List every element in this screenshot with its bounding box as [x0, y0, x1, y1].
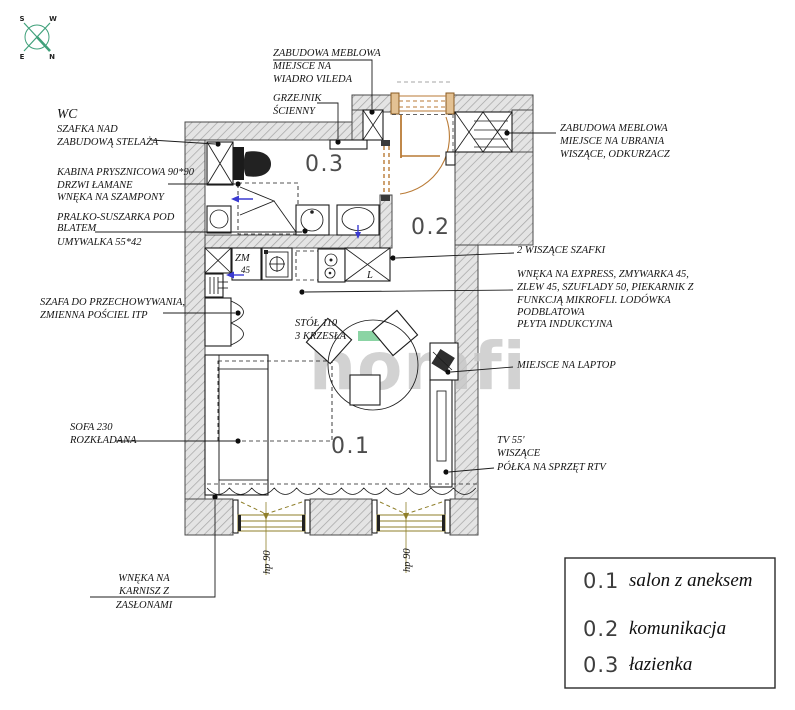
basin-symbol	[337, 205, 379, 239]
curtain-label-3: ZASŁONAMI	[116, 600, 173, 611]
kitchen-label-5: PŁYTA INDUKCYJNA	[516, 319, 613, 330]
compass-e: E	[20, 53, 25, 61]
entry-wardrobe-label-3: WISZĄCE, ODKURZACZ	[560, 149, 670, 160]
laptop-desk-symbol	[430, 343, 458, 380]
window-1: hp 90	[233, 499, 310, 575]
storage-wardrobe-symbol	[205, 298, 244, 346]
wc-title: WC	[57, 106, 78, 121]
entry-wardrobe-label-2: MIEJSCE NA UBRANIA	[559, 136, 665, 147]
basin-label: UMYWALKA 55*42	[57, 237, 142, 248]
kitchen-label-3: FUNKCJĄ MIKROFLI. LODÓWKA	[516, 294, 671, 306]
wc-cabinet-label-1: SZAFKA NAD	[57, 124, 118, 135]
floor-plan-page: S W E N homfi	[0, 0, 795, 710]
sofa-label-1: SOFA 230	[70, 422, 113, 433]
sofa-symbol	[205, 355, 268, 495]
bucket-label-2: MIEJSCE NA	[272, 61, 332, 72]
table-label-2: 3 KRZESŁA	[294, 331, 347, 342]
dishwasher-zm-label: ZM	[235, 253, 251, 264]
room-label-living: 0.1	[331, 434, 371, 459]
legend-num-3: 0.3	[583, 653, 619, 677]
bathroom-folding-door-symbol	[381, 140, 390, 201]
compass-n: N	[49, 53, 55, 61]
fridge-l-label: L	[366, 270, 373, 281]
kitchen-label-1: WNĘKA NA EXPRESS, ZMYWARKA 45,	[517, 269, 689, 280]
legend-label-1: salon z aneksem	[629, 570, 752, 591]
bucket-label-3: WIADRO VILEDA	[273, 74, 353, 85]
entry-wardrobe-label-1: ZABUDOWA MEBLOWA	[560, 123, 668, 134]
shower-label-1: KABINA PRYSZNICOWA 90*90	[56, 167, 195, 178]
room-label-hall: 0.2	[411, 215, 451, 240]
entry-wardrobe-symbol	[455, 112, 512, 152]
curtain-label-1: WNĘKA NA	[118, 573, 170, 584]
kitchen-label-2: ZLEW 45, SZUFLADY 50, PIEKARNIK Z	[517, 282, 694, 293]
entrance-door-symbol	[391, 93, 455, 194]
compass-w: W	[49, 15, 57, 23]
tv-label-3: PÓŁKA NA SPRZĘT RTV	[496, 461, 607, 473]
tv-label-1: TV 55'	[497, 435, 525, 446]
laptop-label: MIEJSCE NA LAPTOP	[516, 360, 616, 371]
legend-label-3: łazienka	[629, 654, 692, 675]
vileda-niche-symbol	[363, 110, 383, 140]
table-label-1: STÓŁ 110	[295, 317, 338, 329]
kitchen-sink-symbol	[262, 248, 292, 280]
kitchen-counter: ZM 45 L	[205, 248, 390, 282]
compass-rose: S W E N	[19, 15, 57, 61]
shower-label-3: WNĘKA NA SZAMPONY	[57, 192, 165, 203]
fridge-cabinet-symbol: L	[345, 248, 390, 281]
bucket-label-1: ZABUDOWA MEBLOWA	[273, 48, 381, 59]
kitchen-label-4: PODBLATOWA	[516, 307, 585, 318]
dishwasher-45-label: 45	[241, 265, 251, 275]
washer-label-2: BLATEM	[57, 223, 98, 234]
wc-cabinet-symbol	[207, 142, 233, 185]
washer-label-1: PRALKO-SUSZARKA POD	[56, 212, 175, 223]
hob-symbol	[318, 249, 345, 282]
drain-box-symbol	[207, 206, 231, 233]
tv-shelf-symbol	[430, 380, 452, 487]
compass-s: S	[19, 15, 24, 23]
window-2: hp 90	[372, 499, 450, 573]
floor-plan-drawing: S W E N homfi	[0, 0, 795, 710]
shower-symbol	[231, 183, 298, 234]
curtain-label-2: KARNISZ Z	[118, 586, 169, 597]
legend: 0.1 salon z aneksem 0.2 komunikacja 0.3 …	[565, 558, 775, 688]
radiator-label-1: GRZEJNIK	[273, 93, 322, 104]
legend-label-2: komunikacja	[629, 618, 726, 639]
window2-hp90-label: hp 90	[402, 548, 413, 572]
legend-num-1: 0.1	[583, 569, 619, 593]
left-heater-symbol	[205, 274, 228, 297]
window1-hp90-label: hp 90	[262, 550, 273, 574]
storage-label-1: SZAFA DO PRZECHOWYWANIA,	[40, 297, 185, 308]
hanging-cabinets-label: 2 WISZĄCE SZAFKI	[517, 245, 606, 256]
storage-label-2: ZMIENNA POŚCIEL ITP	[40, 309, 148, 321]
tv-label-2: WISZĄCE	[497, 448, 541, 459]
corner-cabinet-symbol	[205, 248, 231, 273]
legend-num-2: 0.2	[583, 617, 619, 641]
sofa-label-2: ROZKŁADANA	[69, 435, 137, 446]
room-label-bathroom: 0.3	[305, 152, 345, 177]
washer-dryer-symbol	[296, 205, 329, 235]
wc-cabinet-label-2: ZABUDOWĄ STELAŻA	[57, 136, 159, 148]
toilet-symbol	[233, 147, 271, 180]
radiator-label-2: ŚCIENNY	[273, 105, 316, 117]
shower-label-2: DRZWI ŁAMANE	[56, 180, 133, 191]
